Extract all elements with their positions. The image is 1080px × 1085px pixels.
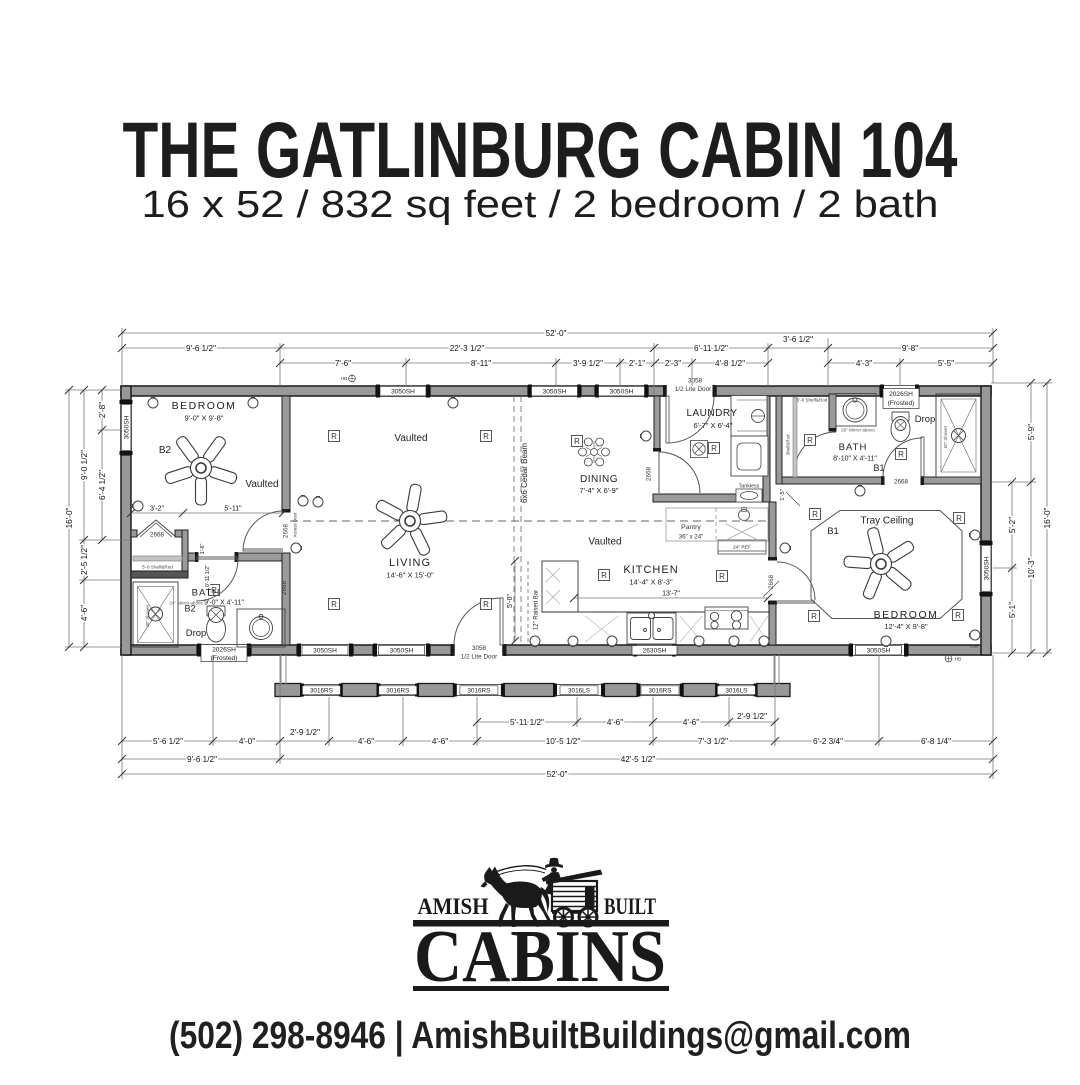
svg-text:HB: HB bbox=[341, 376, 347, 381]
svg-text:3058: 3058 bbox=[472, 645, 487, 652]
svg-text:3050SH: 3050SH bbox=[984, 556, 991, 580]
svg-text:HB: HB bbox=[955, 657, 961, 662]
svg-text:0'-11 1/2": 0'-11 1/2" bbox=[205, 565, 211, 587]
svg-text:1/2 Lite Door: 1/2 Lite Door bbox=[675, 386, 712, 393]
svg-text:3050SH: 3050SH bbox=[867, 648, 891, 655]
svg-text:14'-4" X 8'-3": 14'-4" X 8'-3" bbox=[629, 578, 673, 587]
svg-text:4'-3": 4'-3" bbox=[856, 359, 872, 368]
svg-text:LIVING: LIVING bbox=[389, 557, 431, 569]
svg-text:Tankless: Tankless bbox=[739, 484, 760, 490]
svg-text:14'-6" X 15'-0": 14'-6" X 15'-0" bbox=[386, 571, 434, 580]
svg-text:16 x 52 / 832 sq feet / 2 bedr: 16 x 52 / 832 sq feet / 2 bedroom / 2 ba… bbox=[142, 184, 939, 226]
svg-text:3016RS: 3016RS bbox=[467, 688, 490, 695]
svg-text:5'-11": 5'-11" bbox=[224, 506, 242, 513]
svg-text:7'-6": 7'-6" bbox=[335, 359, 351, 368]
svg-text:3'-2": 3'-2" bbox=[150, 506, 164, 513]
svg-text:4'-6": 4'-6" bbox=[358, 737, 374, 746]
svg-text:3058: 3058 bbox=[688, 378, 703, 385]
svg-text:9'-8": 9'-8" bbox=[902, 344, 918, 353]
svg-text:22'-3 1/2": 22'-3 1/2" bbox=[450, 344, 485, 353]
svg-text:2'-1": 2'-1" bbox=[629, 359, 645, 368]
svg-text:9'-0" X 4'-11": 9'-0" X 4'-11" bbox=[204, 600, 244, 607]
svg-text:3050SH: 3050SH bbox=[543, 389, 567, 396]
svg-text:6'-11 1/2": 6'-11 1/2" bbox=[694, 344, 728, 353]
svg-text:9'-0 1/2": 9'-0 1/2" bbox=[80, 450, 89, 480]
svg-text:2026SH: 2026SH bbox=[889, 391, 913, 398]
svg-text:1/2 Lite Door: 1/2 Lite Door bbox=[461, 654, 498, 661]
svg-text:5'-5": 5'-5" bbox=[938, 359, 954, 368]
svg-text:4'-6": 4'-6" bbox=[607, 718, 623, 727]
svg-text:4'-6": 4'-6" bbox=[683, 718, 699, 727]
svg-text:5'-6 1/2": 5'-6 1/2" bbox=[153, 737, 183, 746]
svg-text:16'-0": 16'-0" bbox=[65, 507, 74, 528]
svg-text:8'-10" X 4'-11": 8'-10" X 4'-11" bbox=[833, 456, 877, 463]
svg-text:3016LS: 3016LS bbox=[725, 688, 747, 695]
svg-text:LAUNDRY: LAUNDRY bbox=[686, 408, 737, 419]
svg-text:2630SH: 2630SH bbox=[643, 648, 667, 655]
svg-text:12'-4" X 9'-8": 12'-4" X 9'-8" bbox=[884, 622, 928, 631]
svg-text:3016LS: 3016LS bbox=[568, 688, 590, 695]
svg-text:10'-5 1/2": 10'-5 1/2" bbox=[546, 737, 581, 746]
svg-text:10'-3": 10'-3" bbox=[1027, 557, 1036, 578]
svg-text:CABINS: CABINS bbox=[414, 916, 666, 998]
svg-text:6'-8 1/4": 6'-8 1/4" bbox=[921, 737, 951, 746]
svg-text:3050SH: 3050SH bbox=[124, 415, 131, 439]
svg-text:6x6 Cedar Beam: 6x6 Cedar Beam bbox=[520, 443, 529, 503]
svg-text:3'-6 1/2": 3'-6 1/2" bbox=[783, 335, 813, 344]
svg-text:7'-4" X 6'-9": 7'-4" X 6'-9" bbox=[579, 486, 618, 495]
svg-text:20" Mirror above: 20" Mirror above bbox=[841, 428, 875, 433]
svg-text:Shelf&Rod: Shelf&Rod bbox=[786, 434, 791, 456]
svg-text:2'-9 1/2": 2'-9 1/2" bbox=[737, 712, 767, 721]
svg-text:9'-6 1/2": 9'-6 1/2" bbox=[187, 755, 217, 764]
svg-text:5'-2": 5'-2" bbox=[1008, 517, 1017, 533]
svg-text:4'-0": 4'-0" bbox=[239, 737, 255, 746]
svg-text:(502) 298-8946 | AmishBuiltBui: (502) 298-8946 | AmishBuiltBuildings@gma… bbox=[169, 1015, 911, 1057]
svg-text:5'-11 1/2": 5'-11 1/2" bbox=[510, 718, 544, 727]
svg-text:3016RS: 3016RS bbox=[386, 688, 409, 695]
svg-text:52'-0": 52'-0" bbox=[547, 770, 568, 779]
svg-text:4'-8 1/2": 4'-8 1/2" bbox=[715, 359, 745, 368]
svg-text:12" Raised Bar: 12" Raised Bar bbox=[534, 590, 540, 630]
svg-text:(Frosted): (Frosted) bbox=[888, 400, 915, 407]
svg-text:4'-6": 4'-6" bbox=[432, 737, 448, 746]
svg-text:5'-9": 5'-9" bbox=[1027, 424, 1036, 440]
svg-text:5'-1": 5'-1" bbox=[1008, 602, 1017, 618]
svg-text:2026SH: 2026SH bbox=[212, 647, 236, 654]
svg-text:1'-5": 1'-5" bbox=[780, 489, 786, 501]
svg-text:52'-0": 52'-0" bbox=[546, 329, 567, 338]
svg-text:Vaulted: Vaulted bbox=[245, 479, 278, 490]
svg-text:B1: B1 bbox=[827, 526, 839, 537]
svg-text:9'-0" X 9'-8": 9'-0" X 9'-8" bbox=[184, 414, 223, 423]
svg-text:6'-4 1/2": 6'-4 1/2" bbox=[98, 470, 107, 500]
svg-text:3016RS: 3016RS bbox=[648, 688, 671, 695]
svg-text:BEDROOM: BEDROOM bbox=[172, 400, 237, 412]
svg-text:BATH: BATH bbox=[839, 442, 868, 453]
svg-text:KITCHEN: KITCHEN bbox=[623, 564, 678, 576]
svg-text:5'-0": 5'-0" bbox=[507, 594, 514, 608]
svg-text:1'-6": 1'-6" bbox=[200, 544, 206, 555]
svg-text:3050SH: 3050SH bbox=[610, 389, 634, 396]
svg-text:3050SH: 3050SH bbox=[390, 648, 414, 655]
svg-text:2668: 2668 bbox=[281, 580, 288, 595]
svg-text:4'-6": 4'-6" bbox=[80, 605, 89, 621]
svg-text:Drop: Drop bbox=[915, 414, 936, 425]
svg-text:(Frosted): (Frosted) bbox=[211, 655, 238, 662]
svg-text:B2: B2 bbox=[159, 445, 172, 456]
svg-text:3'-9 1/2": 3'-9 1/2" bbox=[573, 359, 603, 368]
svg-text:60" Shower: 60" Shower bbox=[943, 425, 948, 448]
svg-text:2668: 2668 bbox=[768, 574, 775, 589]
svg-text:6'-2 3/4": 6'-2 3/4" bbox=[813, 737, 843, 746]
svg-text:B2: B2 bbox=[184, 604, 195, 614]
svg-text:BEDROOM: BEDROOM bbox=[874, 609, 939, 621]
svg-text:42'-5 1/2": 42'-5 1/2" bbox=[621, 755, 656, 764]
svg-text:2'-8": 2'-8" bbox=[98, 402, 107, 418]
svg-text:2668: 2668 bbox=[646, 466, 653, 481]
svg-text:16'-0": 16'-0" bbox=[1043, 507, 1052, 528]
svg-text:Pantry: Pantry bbox=[681, 524, 701, 531]
svg-text:9'-6 1/2": 9'-6 1/2" bbox=[186, 344, 216, 353]
svg-text:B1: B1 bbox=[873, 463, 884, 473]
svg-text:3050SH: 3050SH bbox=[313, 648, 337, 655]
svg-text:Vaulted: Vaulted bbox=[588, 537, 621, 548]
svg-text:DINING: DINING bbox=[580, 474, 618, 485]
svg-text:3016RS: 3016RS bbox=[310, 688, 333, 695]
svg-text:5'-6 Shelf&Rod: 5'-6 Shelf&Rod bbox=[142, 565, 173, 570]
svg-text:2'-9 1/2": 2'-9 1/2" bbox=[290, 728, 320, 737]
svg-text:Access Door: Access Door bbox=[293, 512, 298, 537]
svg-text:USB: USB bbox=[970, 644, 979, 649]
svg-text:2668: 2668 bbox=[283, 523, 290, 538]
svg-text:BATH: BATH bbox=[192, 588, 221, 599]
svg-text:2668: 2668 bbox=[894, 479, 909, 486]
svg-text:8'-11": 8'-11" bbox=[471, 359, 491, 368]
svg-text:36" x 24": 36" x 24" bbox=[679, 534, 704, 541]
svg-text:Drop: Drop bbox=[186, 628, 207, 639]
svg-text:6'-7" X 6'-4": 6'-7" X 6'-4" bbox=[693, 421, 732, 430]
svg-text:Tray Ceiling: Tray Ceiling bbox=[861, 516, 914, 527]
svg-text:5'-6 Shelf&Rod: 5'-6 Shelf&Rod bbox=[797, 398, 828, 403]
svg-text:13'-7": 13'-7" bbox=[662, 591, 680, 598]
svg-text:THE GATLINBURG CABIN 104: THE GATLINBURG CABIN 104 bbox=[123, 105, 958, 194]
svg-text:2'-5 1/2": 2'-5 1/2" bbox=[80, 545, 89, 575]
svg-text:2'-3": 2'-3" bbox=[665, 359, 681, 368]
svg-text:Vaulted: Vaulted bbox=[394, 433, 427, 444]
svg-text:24" REF: 24" REF bbox=[733, 545, 751, 551]
svg-text:7'-3 1/2": 7'-3 1/2" bbox=[698, 737, 728, 746]
svg-text:48" Shower: 48" Shower bbox=[145, 604, 150, 627]
svg-text:2668: 2668 bbox=[150, 532, 165, 539]
svg-text:3050SH: 3050SH bbox=[391, 389, 415, 396]
